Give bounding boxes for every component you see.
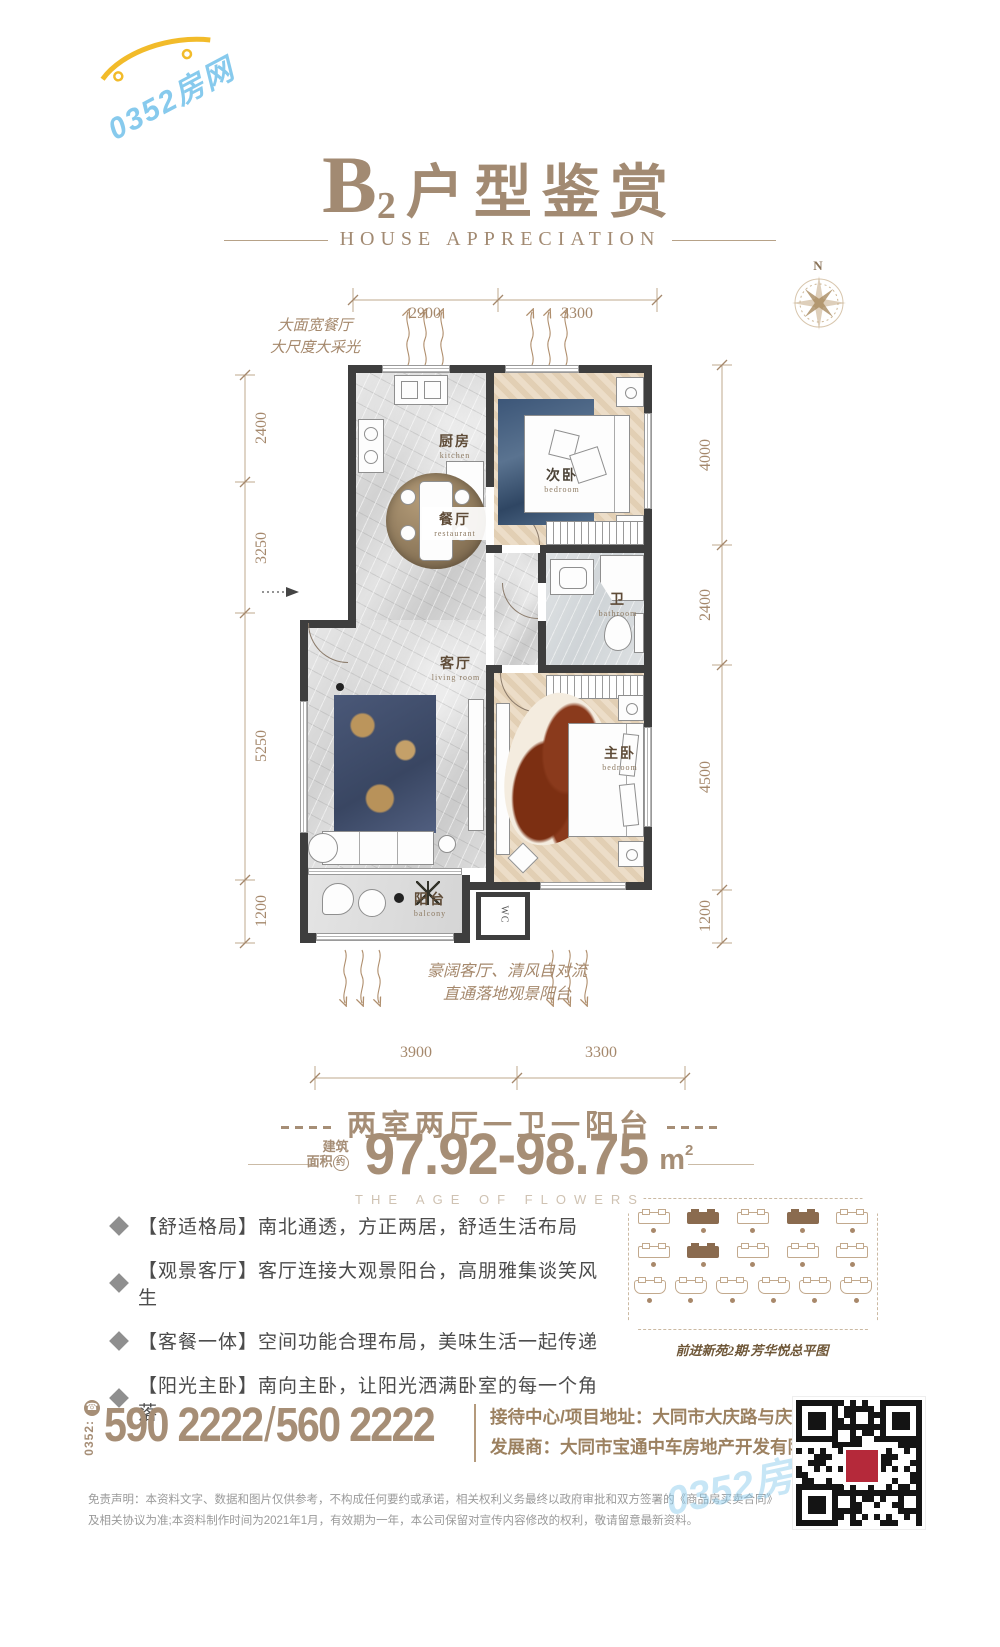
phone-numbers: 590 2222/560 2222 bbox=[104, 1398, 434, 1453]
balcony-chair bbox=[322, 883, 354, 915]
wall-master-top-b bbox=[540, 665, 652, 673]
subtitle-text: HOUSE APPRECIATION bbox=[340, 228, 661, 250]
living-rug bbox=[334, 695, 436, 833]
area-small-label: 建筑 面积约 bbox=[307, 1140, 349, 1171]
living-tv-cabinet bbox=[468, 699, 484, 831]
title-letter: B bbox=[322, 139, 377, 230]
living-side-table bbox=[438, 835, 456, 853]
room-label-kitchen: 厨房 kitchen bbox=[418, 431, 492, 460]
toilet bbox=[604, 615, 632, 651]
wall-master-left bbox=[486, 673, 494, 882]
compass-icon bbox=[790, 274, 848, 332]
living-sofa bbox=[322, 831, 434, 865]
title-index: 2 bbox=[377, 185, 396, 227]
nightstand bbox=[618, 695, 644, 721]
dim-left-1: 2400 bbox=[253, 398, 271, 458]
kitchen-stove bbox=[358, 419, 384, 473]
area-code: 0352: bbox=[82, 1420, 96, 1456]
phone-icon: ☎ bbox=[84, 1400, 100, 1416]
dining-chair bbox=[454, 489, 470, 505]
bedroom2-window-right bbox=[644, 413, 652, 509]
room-label-master: 主卧 bedroom bbox=[592, 743, 648, 772]
living-armchair bbox=[308, 833, 338, 863]
circled-approx: 约 bbox=[333, 1155, 349, 1171]
room-label-bathroom: 卫 bathroom bbox=[594, 589, 642, 618]
phone-2: 560 2222 bbox=[276, 1399, 434, 1452]
page-subtitle: HOUSE APPRECIATION bbox=[0, 228, 1000, 251]
page-title: B2户型鉴赏 bbox=[0, 138, 1000, 232]
title-text: 户型鉴赏 bbox=[406, 160, 678, 225]
annotation-top: 大面宽餐厅 大尺度大采光 bbox=[256, 316, 374, 360]
footer-divider bbox=[474, 1404, 476, 1462]
master-window-bottom bbox=[540, 882, 626, 890]
wall-kitchen-bedroom2 bbox=[486, 365, 494, 487]
wall-left-upper bbox=[348, 365, 356, 627]
living-window-left bbox=[300, 701, 308, 833]
dining-chair bbox=[400, 525, 416, 541]
dim-left-4: 1200 bbox=[253, 881, 271, 941]
toilet-tank bbox=[634, 613, 644, 653]
dim-right-1: 4000 bbox=[697, 425, 715, 485]
dim-bottom-2: 3300 bbox=[571, 1044, 631, 1062]
wall-bedroom2-bottom-b bbox=[540, 545, 652, 553]
qr-center-logo bbox=[843, 1447, 881, 1485]
bathroom-vanity bbox=[550, 559, 594, 595]
dim-top-2: 3300 bbox=[547, 305, 607, 323]
qr-code bbox=[792, 1396, 926, 1530]
subtitle-rule-left bbox=[224, 240, 328, 241]
siteplan-caption: 前进新苑2期·芳华悦总平图 bbox=[628, 1340, 876, 1359]
address-line: 接待中心/项目地址：大同市大庆路与庆新路交汇处 bbox=[490, 1402, 790, 1432]
room-label-dining: 餐厅 restaurant bbox=[422, 507, 488, 540]
subtitle-rule-right bbox=[672, 240, 776, 241]
annotation-bottom: 豪阔客厅、清风自对流 直通落地观景阳台 bbox=[392, 960, 622, 1006]
dining-chair bbox=[400, 489, 416, 505]
dim-right-2: 2400 bbox=[697, 575, 715, 635]
kitchen-window bbox=[382, 365, 450, 373]
pillow bbox=[619, 783, 639, 826]
area-value: 97.92-98.75 bbox=[364, 1130, 648, 1179]
feature-item: 【客餐一体】空间功能合理布局，美味生活一起传递 bbox=[112, 1327, 612, 1354]
wc-closet: WC bbox=[476, 892, 530, 940]
phone-separator: / bbox=[264, 1399, 274, 1452]
wall-balcony-post-left bbox=[308, 933, 316, 943]
balcony-window-bottom bbox=[316, 933, 454, 941]
dim-left-2: 3250 bbox=[253, 518, 271, 578]
area-row: 建筑 面积约 97.92-98.75 m2 bbox=[0, 1130, 1000, 1179]
balcony-sill-window bbox=[308, 868, 462, 875]
dim-top-1: 2900 bbox=[395, 305, 455, 323]
diamond-bullet-icon bbox=[109, 1216, 129, 1236]
nightstand bbox=[618, 841, 644, 867]
compass-north-label: N bbox=[788, 258, 848, 274]
dim-right-3: 4500 bbox=[697, 747, 715, 807]
wall-balcony-post-right bbox=[454, 933, 462, 943]
master-window-right bbox=[644, 727, 652, 827]
bedroom2-bed bbox=[524, 415, 630, 513]
nightstand bbox=[616, 377, 644, 407]
diamond-bullet-icon bbox=[109, 1331, 129, 1351]
wall-bath-left-a bbox=[538, 553, 546, 583]
floor-lamp bbox=[336, 683, 344, 691]
feature-item: 【观景客厅】客厅连接大观景阳台，高朋雅集谈笑风生 bbox=[112, 1256, 612, 1310]
balcony-chair bbox=[358, 889, 386, 917]
dash-right bbox=[667, 1126, 719, 1129]
siteplan-map bbox=[628, 1198, 878, 1330]
area-unit: m2 bbox=[659, 1142, 693, 1177]
floorplan: WC 厨房 kitchen 餐厅 restaurant 次卧 bedroom 卫… bbox=[300, 365, 652, 945]
dim-bottom-1: 3900 bbox=[386, 1044, 446, 1062]
room-label-balcony: 阳台 balcony bbox=[400, 889, 460, 918]
dash-left bbox=[281, 1126, 333, 1129]
siteplan-rows bbox=[629, 1208, 877, 1303]
diamond-bullet-icon bbox=[109, 1273, 129, 1293]
feature-item: 【舒适格局】南北通透，方正两居，舒适生活布局 bbox=[112, 1212, 612, 1239]
master-bed bbox=[568, 723, 644, 837]
site-watermark: 0352房网 bbox=[88, 20, 243, 134]
dim-right-4: 1200 bbox=[697, 886, 715, 946]
room-label-bedroom2: 次卧 bedroom bbox=[532, 465, 592, 494]
dim-left-3: 5250 bbox=[253, 716, 271, 776]
wall-bedroom2-bottom-a bbox=[486, 545, 502, 553]
phone-1: 590 2222 bbox=[104, 1399, 262, 1452]
wall-balcony-right bbox=[462, 875, 470, 943]
wc-label: WC bbox=[499, 905, 510, 923]
kitchen-sink bbox=[394, 375, 448, 405]
bedroom2-wardrobe bbox=[546, 521, 644, 545]
bedroom2-window-top bbox=[505, 365, 579, 373]
room-label-living: 客厅 living room bbox=[414, 653, 498, 682]
